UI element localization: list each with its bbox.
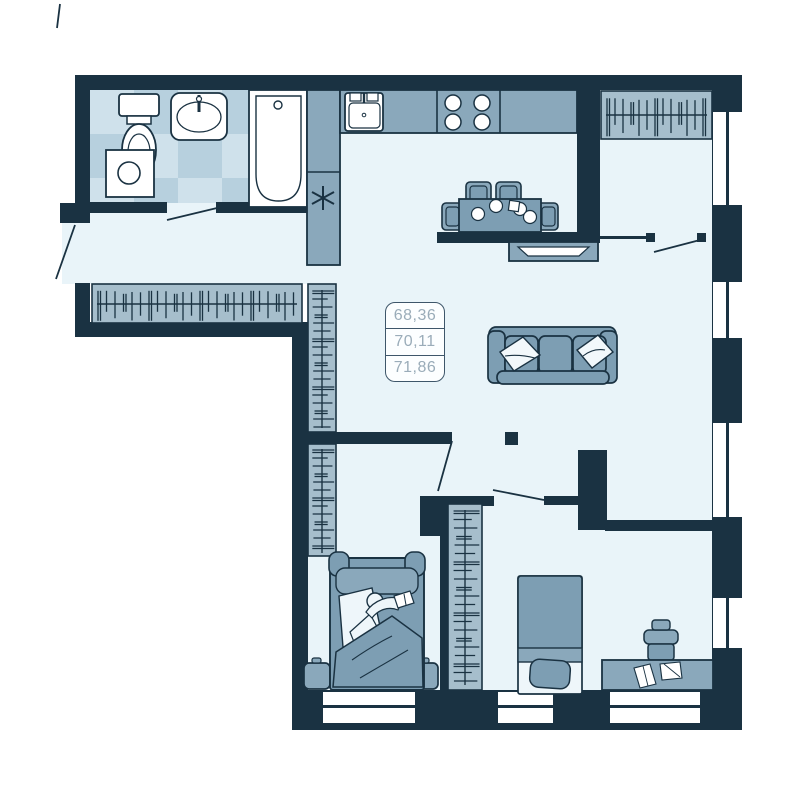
- tv: [509, 242, 598, 261]
- sofa: [488, 327, 617, 384]
- floor-hall-lower: [62, 222, 308, 284]
- area-label: 68,36 70,11 71,86: [385, 302, 445, 382]
- tv-screen: [518, 247, 589, 256]
- wall-bath-bottom-left: [90, 202, 167, 213]
- area-value-1: 68,36: [386, 303, 444, 328]
- napkin: [508, 200, 519, 211]
- bed-pillow: [336, 568, 418, 594]
- wall-left-lower: [292, 337, 308, 693]
- bed-blanket: [518, 576, 582, 650]
- desk-chair-seat: [648, 644, 674, 660]
- wall-outer-band: [88, 322, 308, 337]
- window-right-4: [713, 598, 742, 648]
- wall-left-mid: [75, 283, 90, 337]
- door-stop-left: [646, 233, 655, 242]
- wardrobe-bedroom2: [448, 504, 482, 690]
- wardrobe-strip-bedroom1: [308, 444, 336, 556]
- desk-chair-back: [644, 630, 678, 644]
- plate: [490, 200, 503, 213]
- bathtub: [249, 90, 307, 207]
- plate: [472, 208, 485, 221]
- wall-bedroom2-stub: [544, 496, 578, 505]
- bed-pillow: [529, 659, 571, 690]
- single-bed: [518, 576, 582, 694]
- wall-left-foot: [60, 203, 90, 223]
- plate: [524, 211, 537, 224]
- paper: [660, 662, 682, 680]
- wall-living-bedroom1: [305, 432, 452, 444]
- window-right-1: [713, 112, 742, 205]
- wall-pillar: [578, 450, 607, 530]
- wall-top: [75, 75, 742, 90]
- wardrobe-entry-hall: [601, 91, 712, 139]
- tick-mark: [57, 4, 60, 28]
- floor-plan: 68,36 70,11 71,86: [0, 0, 800, 800]
- wardrobe-hall: [92, 284, 302, 323]
- bathroom-sink: [171, 93, 227, 140]
- window-right-2: [713, 282, 742, 338]
- window-bottom-3: [610, 692, 700, 723]
- hall-partition-line: [600, 236, 650, 239]
- window-bottom-2: [498, 692, 553, 723]
- window-bottom-1: [323, 692, 415, 723]
- desk: [602, 660, 713, 690]
- wall-bedroom2-top-east: [605, 520, 712, 531]
- area-value-3: 71,86: [386, 355, 444, 381]
- nightstand: [304, 663, 330, 689]
- wardrobe-strip-upper: [308, 284, 336, 432]
- area-value-2: 70,11: [386, 328, 444, 354]
- washing-machine: [106, 150, 154, 197]
- vent-column: [307, 90, 340, 265]
- wall-jamb: [505, 432, 518, 445]
- window-right-3: [713, 423, 742, 517]
- kitchen-sink: [345, 93, 383, 131]
- wall-kitchen-hall: [577, 90, 600, 237]
